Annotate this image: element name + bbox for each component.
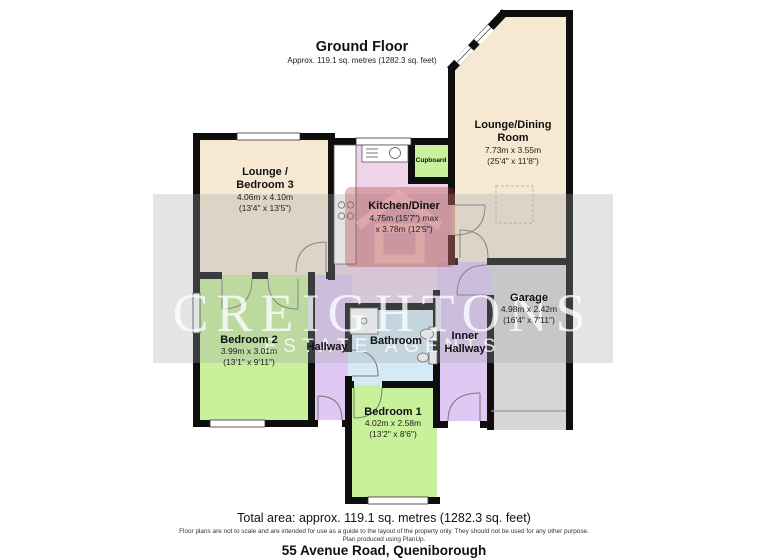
page-title: Ground Floor (316, 39, 409, 56)
floorplan-page: CREIGHTONS ESTATE AGENTS Ground Floor Ap… (0, 0, 768, 559)
disclaimer-line1: Floor plans are not to scale and are int… (179, 528, 589, 535)
label-cupboard: Cupboard (416, 157, 447, 164)
window-lounge-bedroom3 (237, 133, 300, 140)
total-area-text: Total area: approx. 119.1 sq. metres (12… (237, 511, 531, 525)
inner-hallway-threshold (448, 421, 480, 428)
label-bathroom: Bathroom (370, 335, 422, 348)
window-bedroom1 (368, 497, 428, 504)
kitchen-sink-unit (362, 145, 408, 162)
window-bedroom2-bottom (210, 420, 265, 427)
label-hallway: Hallway (307, 341, 348, 354)
floor-plan-canvas: CREIGHTONS ESTATE AGENTS (0, 0, 768, 559)
room-bedroom1 (348, 385, 437, 501)
window-kitchen (356, 138, 411, 145)
property-address: 55 Avenue Road, Queniborough (282, 543, 487, 559)
page-subtitle: Approx. 119.1 sq. metres (1282.3 sq. fee… (287, 56, 436, 65)
front-door-threshold (318, 420, 342, 427)
